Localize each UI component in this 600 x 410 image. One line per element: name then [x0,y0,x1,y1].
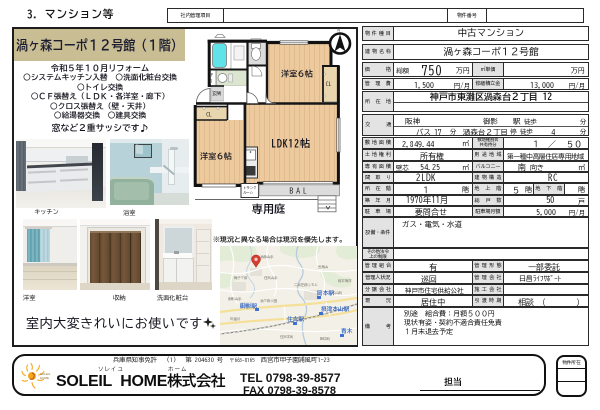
svg-text:住吉駅: 住吉駅 [287,316,304,322]
svg-text:洋室６帖: 洋室６帖 [281,70,313,78]
svg-text:P: P [211,73,213,78]
svg-text:玄関: 玄関 [212,91,222,96]
svg-text:岡本駅: 岡本駅 [317,290,334,297]
svg-text:田中町: 田中町 [320,337,331,341]
svg-text:摂津本山駅: 摂津本山駅 [321,306,349,313]
svg-text:CL: CL [206,112,212,118]
svg-text:BAL: BAL [290,187,310,195]
svg-text:専用庭: 専用庭 [252,203,285,215]
svg-text:洋室６帖: 洋室６帖 [200,152,232,160]
svg-text:ルーム: ルーム [243,191,254,195]
svg-text:御影駅: 御影駅 [239,302,257,309]
svg-text:岡本梅林: 岡本梅林 [338,279,352,283]
svg-text:青木: 青木 [341,328,353,335]
svg-text:CL: CL [326,81,332,87]
svg-text:HOME: HOME [40,376,49,380]
svg-text:LDK12帖: LDK12帖 [271,138,311,149]
svg-text:N: N [338,28,340,33]
